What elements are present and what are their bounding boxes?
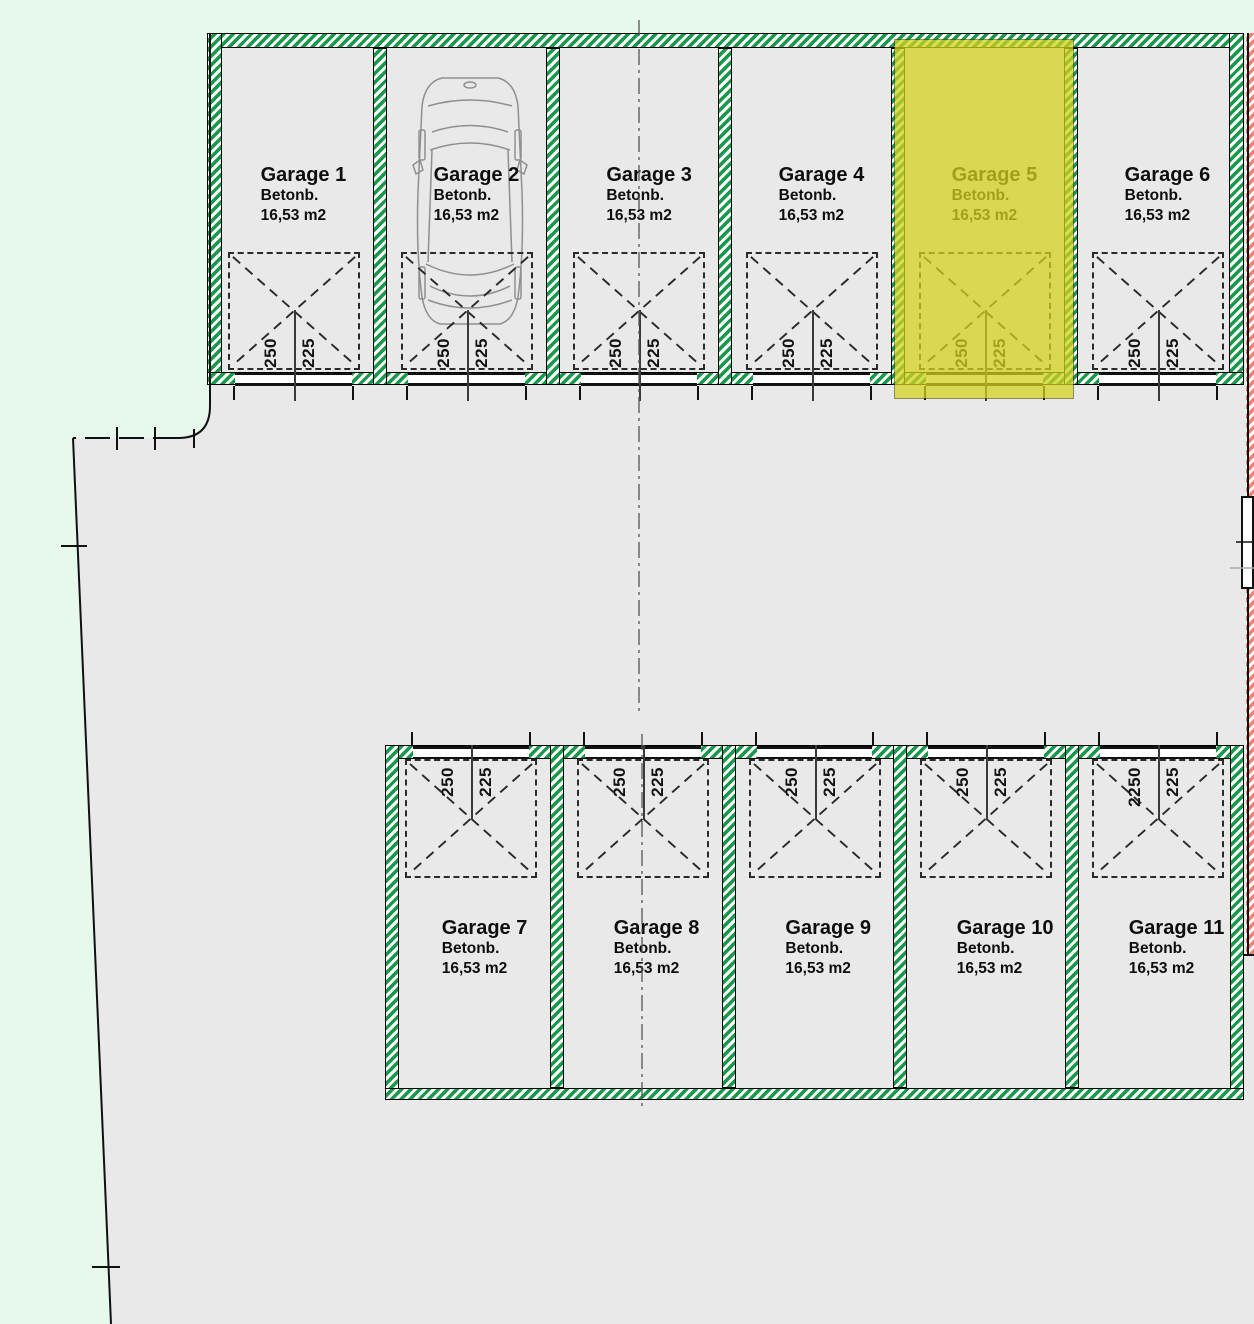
garage-cell-10[interactable]: 250 225 Garage 10 Betonb. 16,53 m2 [900,759,1072,1088]
garage-name: Garage 4 [779,164,865,186]
dimension-line [639,310,641,401]
dim-width: 250 [261,338,281,368]
dimension-line [643,745,645,819]
garage-area: 16,53 m2 [1129,959,1225,979]
dim-depth: 225 [648,767,668,797]
dimension-line [1158,745,1160,819]
dim-width: 250 [953,767,973,797]
dim-width: 250 [779,338,799,368]
garage-label: Garage 4 Betonb. 16,53 m2 [779,164,865,225]
dim-width: 250 [610,767,630,797]
dim-depth: 225 [1163,767,1183,797]
garage-area: 16,53 m2 [957,959,1054,979]
dimension-line [986,745,988,819]
site-plan: Garage 1 Betonb. 16,53 m2 250 225 [0,0,1254,1324]
dim-width: 250 [434,338,454,368]
garage-name: Garage 8 [614,917,700,939]
garage-cell-9[interactable]: 250 225 Garage 9 Betonb. 16,53 m2 [729,759,900,1088]
garage-label: Garage 6 Betonb. 16,53 m2 [1125,164,1211,225]
garage-cell-3[interactable]: Garage 3 Betonb. 16,53 m2 250 225 [553,48,725,374]
dim-depth: 225 [299,338,319,368]
garage-label: Garage 1 Betonb. 16,53 m2 [261,164,347,225]
wall-bottom-row-south [385,1088,1244,1100]
dimension-line [815,745,817,819]
garage-area: 16,53 m2 [785,959,871,979]
garage-name: Garage 7 [442,917,528,939]
garage-name: Garage 6 [1125,164,1211,186]
garage-floor: Betonb. [434,186,520,206]
garage-area: 16,53 m2 [261,206,347,226]
garage-floor: Betonb. [442,939,528,959]
garage-cell-4[interactable]: Garage 4 Betonb. 16,53 m2 250 225 [725,48,898,374]
garage-floor: Betonb. [957,939,1054,959]
dim-depth: 225 [817,338,837,368]
garage-cell-11[interactable]: 2250 225 Garage 11 Betonb. 16,53 m2 [1072,759,1244,1088]
garage-name: Garage 3 [606,164,692,186]
garage-cell-1[interactable]: Garage 1 Betonb. 16,53 m2 250 225 [207,48,380,374]
garage-label: Garage 2 Betonb. 16,53 m2 [434,164,520,225]
dim-depth: 225 [1163,338,1183,368]
garage-label: Garage 3 Betonb. 16,53 m2 [606,164,692,225]
garage-name: Garage 2 [434,164,520,186]
wall-top-row-north [207,33,1244,48]
garage-label: Garage 7 Betonb. 16,53 m2 [442,917,528,978]
garage-name: Garage 1 [261,164,347,186]
red-hatch-boundary [1246,33,1254,954]
garage-cell-7[interactable]: 250 225 Garage 7 Betonb. 16,53 m2 [385,759,557,1088]
garage-floor: Betonb. [1129,939,1225,959]
garage-label: Garage 11 Betonb. 16,53 m2 [1129,917,1225,978]
dim-width: 2250 [1125,767,1145,807]
garage-name: Garage 9 [785,917,871,939]
dim-depth: 225 [820,767,840,797]
garage-area: 16,53 m2 [434,206,520,226]
dimension-line [812,310,814,401]
garage-area: 16,53 m2 [614,959,700,979]
dim-depth: 225 [644,338,664,368]
garage-floor: Betonb. [1125,186,1211,206]
garage-cell-6[interactable]: Garage 6 Betonb. 16,53 m2 250 225 [1071,48,1244,374]
dim-width: 250 [438,767,458,797]
dim-depth: 225 [472,338,492,368]
garage-area: 16,53 m2 [606,206,692,226]
garage-floor: Betonb. [614,939,700,959]
dimension-line [471,745,473,819]
garage-label: Garage 8 Betonb. 16,53 m2 [614,917,700,978]
dim-width: 250 [606,338,626,368]
dim-width: 250 [782,767,802,797]
dim-width: 250 [1125,338,1145,368]
garage-label: Garage 9 Betonb. 16,53 m2 [785,917,871,978]
dimension-line [294,310,296,401]
garage-area: 16,53 m2 [1125,206,1211,226]
garage-cell-8[interactable]: 250 225 Garage 8 Betonb. 16,53 m2 [557,759,729,1088]
garage-floor: Betonb. [785,939,871,959]
garage-floor: Betonb. [779,186,865,206]
dim-depth: 225 [476,767,496,797]
garage-5-highlight [895,40,1073,398]
garage-area: 16,53 m2 [442,959,528,979]
garage-name: Garage 11 [1129,917,1225,939]
garage-area: 16,53 m2 [779,206,865,226]
garage-label: Garage 10 Betonb. 16,53 m2 [957,917,1054,978]
dimension-line [467,310,469,401]
dim-depth: 225 [991,767,1011,797]
garage-name: Garage 10 [957,917,1054,939]
garage-floor: Betonb. [261,186,347,206]
garage-floor: Betonb. [606,186,692,206]
dimension-line [1158,310,1160,401]
garage-cell-2[interactable]: Garage 2 Betonb. 16,53 m2 250 225 [380,48,553,374]
